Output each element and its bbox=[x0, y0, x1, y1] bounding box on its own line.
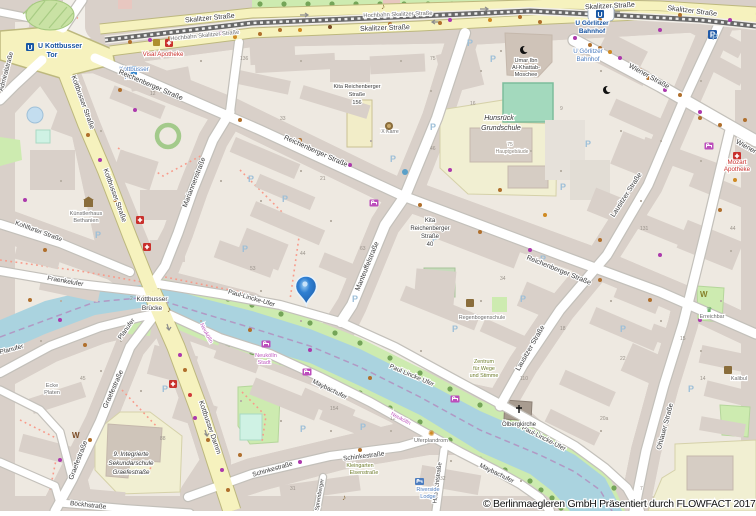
svg-text:44: 44 bbox=[300, 251, 306, 257]
svg-text:♪: ♪ bbox=[342, 493, 346, 502]
svg-text:Mozart: Mozart bbox=[728, 159, 747, 166]
svg-text:Tor: Tor bbox=[47, 52, 58, 59]
svg-text:Apotheke: Apotheke bbox=[724, 166, 751, 173]
svg-text:Bahnhof: Bahnhof bbox=[576, 56, 599, 63]
svg-text:Kleingarten: Kleingarten bbox=[346, 463, 373, 469]
svg-text:Elsenstraße: Elsenstraße bbox=[350, 470, 379, 476]
svg-text:7: 7 bbox=[640, 486, 643, 492]
svg-text:2: 2 bbox=[130, 296, 133, 302]
svg-text:Erreichbar: Erreichbar bbox=[700, 314, 725, 320]
svg-text:9. Integrierte: 9. Integrierte bbox=[113, 451, 149, 458]
svg-text:P: P bbox=[688, 384, 694, 394]
svg-text:für Wege: für Wege bbox=[473, 366, 495, 372]
svg-text:131: 131 bbox=[640, 226, 649, 232]
svg-text:45: 45 bbox=[80, 376, 86, 382]
svg-text:U Görlitzer: U Görlitzer bbox=[575, 20, 609, 27]
svg-text:Künstlerhaus: Künstlerhaus bbox=[70, 211, 103, 217]
svg-text:Riverside: Riverside bbox=[416, 487, 439, 493]
svg-text:U Kottbusser: U Kottbusser bbox=[38, 43, 82, 50]
svg-text:P: P bbox=[585, 139, 591, 149]
svg-text:P: P bbox=[282, 194, 288, 204]
svg-text:75: 75 bbox=[430, 56, 436, 62]
svg-text:♪: ♪ bbox=[381, 2, 385, 11]
svg-text:33: 33 bbox=[280, 116, 286, 122]
svg-text:12: 12 bbox=[150, 91, 156, 97]
svg-text:P: P bbox=[520, 294, 526, 304]
svg-text:P: P bbox=[352, 294, 358, 304]
svg-text:Grundschule: Grundschule bbox=[481, 125, 521, 132]
svg-text:Straße: Straße bbox=[421, 234, 440, 240]
svg-text:Zentrum: Zentrum bbox=[474, 359, 495, 365]
svg-text:Stadt: Stadt bbox=[257, 360, 271, 366]
svg-text:Ecke: Ecke bbox=[46, 383, 58, 389]
svg-text:46: 46 bbox=[430, 146, 436, 152]
svg-text:Bahnhof: Bahnhof bbox=[579, 28, 606, 35]
svg-text:Graefestraße: Graefestraße bbox=[112, 469, 150, 476]
svg-text:Ölbergkirche: Ölbergkirche bbox=[502, 421, 537, 428]
svg-text:♛: ♛ bbox=[706, 306, 712, 314]
svg-text:110: 110 bbox=[520, 376, 528, 382]
svg-text:63: 63 bbox=[360, 246, 366, 252]
svg-text:Platen: Platen bbox=[44, 390, 60, 396]
svg-text:16: 16 bbox=[470, 101, 476, 107]
svg-text:88: 88 bbox=[160, 436, 166, 442]
svg-text:Kita: Kita bbox=[425, 218, 436, 224]
svg-text:Hauptgebäude: Hauptgebäude bbox=[496, 149, 529, 155]
svg-text:136: 136 bbox=[240, 56, 249, 62]
svg-text:Bethanien: Bethanien bbox=[73, 218, 98, 224]
svg-text:P: P bbox=[490, 54, 496, 64]
svg-text:P: P bbox=[560, 182, 566, 192]
svg-text:44: 44 bbox=[730, 226, 736, 232]
svg-text:P: P bbox=[162, 384, 168, 394]
svg-text:U: U bbox=[27, 45, 32, 52]
svg-text:♪: ♪ bbox=[167, 305, 171, 314]
svg-text:Neukölln: Neukölln bbox=[255, 353, 277, 359]
svg-text:✺: ✺ bbox=[428, 429, 435, 438]
svg-text:15: 15 bbox=[680, 336, 686, 342]
svg-text:© Berlinmaegleren GmbH Präsent: © Berlinmaegleren GmbH Präsentiert durch… bbox=[483, 499, 756, 510]
svg-text:Visal Apotheke: Visal Apotheke bbox=[143, 51, 184, 58]
svg-text:Lodge: Lodge bbox=[420, 494, 436, 500]
svg-text:P: P bbox=[300, 424, 306, 434]
svg-text:9: 9 bbox=[560, 106, 563, 112]
svg-text:P: P bbox=[430, 122, 436, 132]
svg-text:Moschee: Moschee bbox=[515, 72, 538, 78]
svg-text:Hunsrück: Hunsrück bbox=[484, 115, 514, 122]
svg-text:Umar Ibn: Umar Ibn bbox=[514, 58, 537, 64]
svg-text:Straße: Straße bbox=[349, 92, 366, 98]
svg-text:18: 18 bbox=[560, 326, 566, 332]
svg-text:und Stimme: und Stimme bbox=[470, 373, 499, 379]
svg-text:P: P bbox=[95, 230, 101, 240]
svg-text:Brücke: Brücke bbox=[142, 305, 163, 312]
svg-text:P: P bbox=[242, 244, 248, 254]
svg-text:P: P bbox=[452, 324, 458, 334]
svg-text:W: W bbox=[700, 290, 708, 299]
svg-text:Uferplandrom: Uferplandrom bbox=[414, 438, 448, 444]
svg-text:U Görlitzer: U Görlitzer bbox=[573, 48, 603, 55]
svg-text:P: P bbox=[390, 154, 396, 164]
svg-text:Kalibul: Kalibul bbox=[731, 376, 747, 382]
svg-text:Sekundarschule: Sekundarschule bbox=[108, 460, 154, 467]
svg-text:P: P bbox=[712, 32, 718, 42]
svg-text:Kottbusser: Kottbusser bbox=[136, 296, 168, 303]
svg-text:W: W bbox=[72, 431, 80, 440]
svg-text:75: 75 bbox=[507, 142, 513, 148]
svg-text:34: 34 bbox=[500, 276, 506, 282]
svg-text:40: 40 bbox=[427, 242, 434, 248]
svg-text:154: 154 bbox=[330, 406, 339, 412]
svg-text:53: 53 bbox=[250, 266, 256, 272]
svg-text:P: P bbox=[248, 174, 254, 184]
svg-text:X Karre: X Karre bbox=[381, 129, 399, 135]
svg-text:P: P bbox=[467, 38, 473, 48]
svg-text:21: 21 bbox=[320, 176, 326, 182]
svg-text:P: P bbox=[360, 422, 366, 432]
svg-text:14: 14 bbox=[700, 376, 706, 382]
svg-text:P: P bbox=[620, 324, 626, 334]
svg-text:31: 31 bbox=[290, 486, 296, 492]
svg-text:20a: 20a bbox=[600, 416, 609, 422]
svg-text:156: 156 bbox=[352, 100, 361, 106]
svg-text:Regenbogenschule: Regenbogenschule bbox=[459, 315, 505, 321]
svg-text:U: U bbox=[597, 12, 602, 19]
svg-text:Kita Reichenberger: Kita Reichenberger bbox=[333, 84, 380, 90]
svg-text:Al-Khattab-: Al-Khattab- bbox=[512, 65, 540, 71]
svg-text:Reichenberger: Reichenberger bbox=[410, 226, 449, 232]
svg-text:22: 22 bbox=[620, 356, 626, 362]
